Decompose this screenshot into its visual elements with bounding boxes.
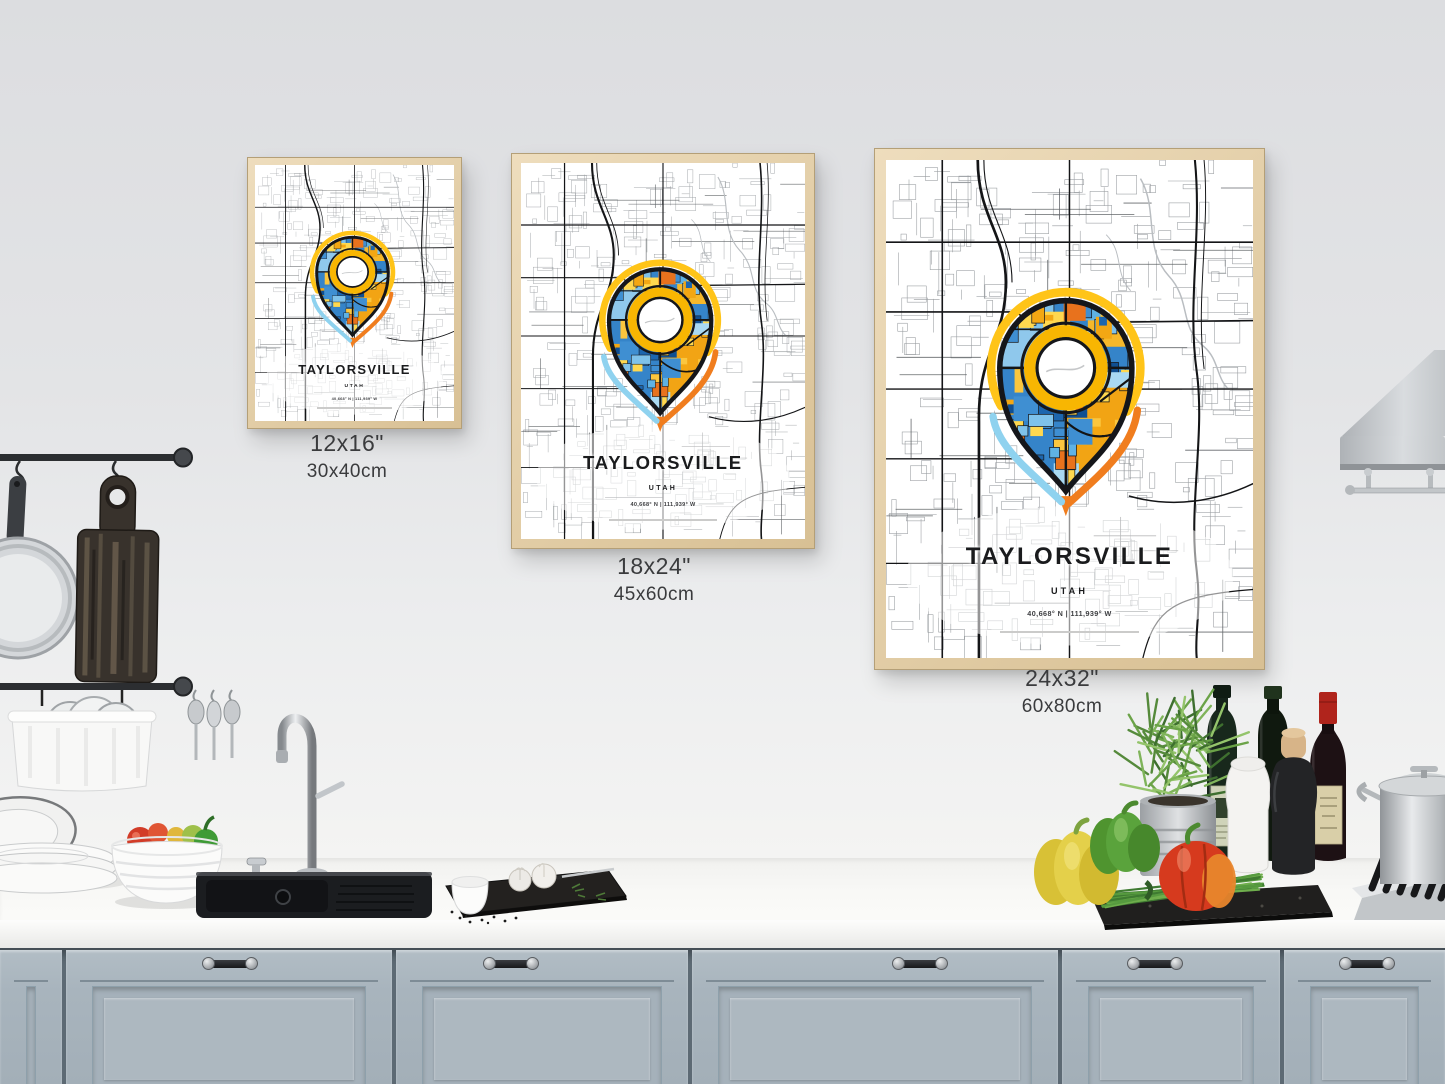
poster-text: TAYLORSVILLE UTAH 40,668° N | 111,939° W xyxy=(521,163,805,539)
poster-text: TAYLORSVILLE UTAH 40,668° N | 111,939° W xyxy=(255,165,454,421)
poster-frame-small: TAYLORSVILLE UTAH 40,668° N | 111,939° W xyxy=(247,157,462,429)
faucet-lever xyxy=(318,784,342,796)
kitchen-cabinets xyxy=(0,948,1445,1084)
kitchen-sink xyxy=(196,718,432,918)
hood-rail xyxy=(1348,488,1445,493)
handle-cap xyxy=(483,957,496,970)
pepper-stem xyxy=(1124,803,1136,812)
cabinet-door xyxy=(692,950,1058,1084)
stock-pot xyxy=(1359,766,1445,884)
pepper-stem xyxy=(1076,820,1087,832)
handle-cap xyxy=(1127,957,1140,970)
door-panel xyxy=(92,986,366,1084)
cabinet-handle[interactable] xyxy=(892,957,948,970)
size-centimeters: 30x40cm xyxy=(307,461,388,483)
door-panel xyxy=(422,986,662,1084)
door-groove xyxy=(1076,980,1266,982)
pepper-stem xyxy=(205,817,214,830)
hood-cone xyxy=(1342,350,1445,436)
cabinet-handle[interactable] xyxy=(202,957,258,970)
faucet-neck xyxy=(282,718,312,872)
range-hood xyxy=(1340,350,1445,530)
wine-label xyxy=(1315,786,1342,844)
size-label-medium: 18x24" 45x60cm xyxy=(614,553,695,606)
handle-cap xyxy=(526,957,539,970)
cabinet-door xyxy=(1062,950,1280,1084)
left-counter-props xyxy=(0,690,680,960)
size-centimeters: 45x60cm xyxy=(614,584,695,606)
poster-title: TAYLORSVILLE xyxy=(255,363,454,376)
poster-title: TAYLORSVILLE xyxy=(886,545,1253,569)
size-inches: 18x24" xyxy=(614,553,695,580)
plate-stack xyxy=(0,789,117,893)
door-panel xyxy=(1088,986,1254,1084)
hood-rail-end xyxy=(1345,485,1355,495)
poster-credit-line xyxy=(609,519,717,521)
door-panel xyxy=(1310,986,1419,1084)
handle-cap xyxy=(1339,957,1352,970)
cabinet-door xyxy=(1284,950,1445,1084)
handle-cap xyxy=(892,957,905,970)
oil-bottle-cap xyxy=(1213,685,1231,698)
door-panel xyxy=(718,986,1032,1084)
cabinet-handle[interactable] xyxy=(483,957,539,970)
cabinet-handle[interactable] xyxy=(1339,957,1395,970)
cabinet-handle[interactable] xyxy=(1127,957,1183,970)
chive-tie xyxy=(1146,882,1151,899)
size-label-small: 12x16" 30x40cm xyxy=(307,430,388,483)
cabinet-door xyxy=(66,950,392,1084)
wine-cap xyxy=(1319,692,1337,724)
cabinet-door xyxy=(0,950,62,1084)
poster-large: TAYLORSVILLE UTAH 40,668° N | 111,939° W xyxy=(886,160,1253,658)
door-panel xyxy=(26,986,36,1084)
poster-frame-large: TAYLORSVILLE UTAH 40,668° N | 111,939° W xyxy=(874,148,1265,670)
poster-state: UTAH xyxy=(255,384,454,389)
handle-cap xyxy=(1382,957,1395,970)
white-grinder xyxy=(1226,757,1270,873)
upper-rail xyxy=(0,449,192,467)
poster-state: UTAH xyxy=(521,485,805,492)
door-groove xyxy=(706,980,1044,982)
tomato xyxy=(148,823,168,843)
hanging-pan xyxy=(0,476,78,658)
faucet-spout xyxy=(276,750,288,763)
cabinet-door xyxy=(396,950,688,1084)
sink-basin xyxy=(206,880,328,912)
poster-coordinates: 40,668° N | 111,939° W xyxy=(255,396,454,401)
sink-drain xyxy=(276,890,290,904)
handle-cap xyxy=(1170,957,1183,970)
poster-credit-line xyxy=(1000,631,1139,633)
size-inches: 12x16" xyxy=(307,430,388,457)
poster-state: UTAH xyxy=(886,586,1253,596)
handle-cap xyxy=(935,957,948,970)
dark-bottle-cap xyxy=(1264,686,1282,699)
poster-credit-line xyxy=(317,407,393,409)
handle-cap xyxy=(245,957,258,970)
poster-text: TAYLORSVILLE UTAH 40,668° N | 111,939° W xyxy=(886,160,1253,658)
poster-coordinates: 40,668° N | 111,939° W xyxy=(521,502,805,508)
right-counter-props xyxy=(1000,680,1445,950)
hood-band xyxy=(1340,436,1445,468)
poster-medium: TAYLORSVILLE UTAH 40,668° N | 111,939° W xyxy=(521,163,805,539)
door-groove xyxy=(1298,980,1431,982)
door-groove xyxy=(80,980,378,982)
poster-title: TAYLORSVILLE xyxy=(521,454,805,473)
door-groove xyxy=(14,980,48,982)
kitchen-scene: TAYLORSVILLE UTAH 40,668° N | 111,939° W… xyxy=(0,0,1445,1084)
handle-cap xyxy=(202,957,215,970)
poster-small: TAYLORSVILLE UTAH 40,668° N | 111,939° W xyxy=(255,165,454,421)
garlic-board xyxy=(446,864,627,925)
hanging-cutting-board xyxy=(75,475,160,682)
poster-coordinates: 40,668° N | 111,939° W xyxy=(886,609,1253,618)
poster-frame-medium: TAYLORSVILLE UTAH 40,668° N | 111,939° W xyxy=(511,153,815,549)
door-groove xyxy=(410,980,674,982)
